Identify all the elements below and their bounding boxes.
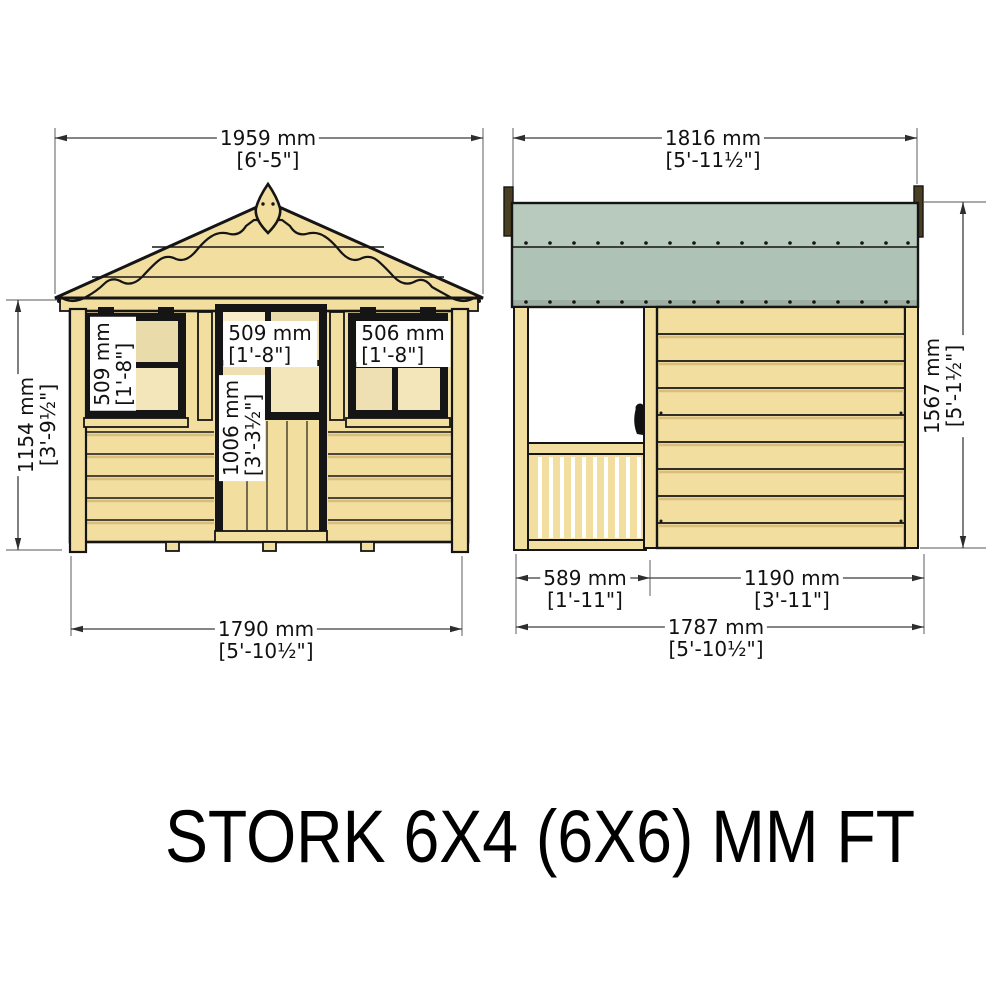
balustrade-bottom-rail [528,540,646,550]
side-wall [644,307,918,548]
dim-side-overall-height: 1567 mm [5'-1½"] [921,335,965,437]
balustrade-top-rail [528,443,646,454]
side-porch [514,307,646,550]
drawing-title: STORK 6X4 (6X6) MM FT [165,799,915,875]
dim-front-overall-width: 1959 mm [6'-5"] [217,127,319,171]
front-base-feet [166,542,374,551]
label-left-window-width: 509 mm [1'-8"] [90,317,136,411]
dim-side-overall-width: 1816 mm [5'-11½"] [662,127,764,171]
porch-balustrade [528,454,646,540]
window-sill [84,418,188,427]
window-sill [346,418,450,427]
label-right-window-width: 506 mm [1'-8"] [356,321,450,367]
hinge-icon [98,307,114,314]
hinge-icon [158,307,174,314]
dim-front-wall-height: 1154 mm [3'-9½"] [15,374,59,476]
dim-side-wall-width: 1190 mm [3'-11"] [741,567,843,611]
label-door-height: 1006 mm [3'-3½"] [219,375,265,481]
hinge-icon [420,307,436,314]
wall-divider-trim [644,307,657,548]
front-corner-trim-left [70,309,86,552]
side-roof [512,203,918,307]
door-threshold [215,531,327,542]
side-corner-trim [905,307,918,548]
hinge-icon [360,307,376,314]
front-corner-trim-right [452,309,468,552]
technical-drawing-page: 1959 mm [6'-5"] 1816 mm [5'-11½"] 1154 m… [0,0,1000,1000]
front-roof [55,184,483,303]
label-door-window-width: 509 mm [1'-8"] [223,321,317,367]
side-elevation [504,186,923,550]
dim-side-base-width: 1787 mm [5'-10½"] [665,616,767,660]
dim-front-base-width: 1790 mm [5'-10½"] [215,618,317,662]
porch-post [514,307,528,550]
dim-porch-depth: 589 mm [1'-11"] [540,567,630,611]
